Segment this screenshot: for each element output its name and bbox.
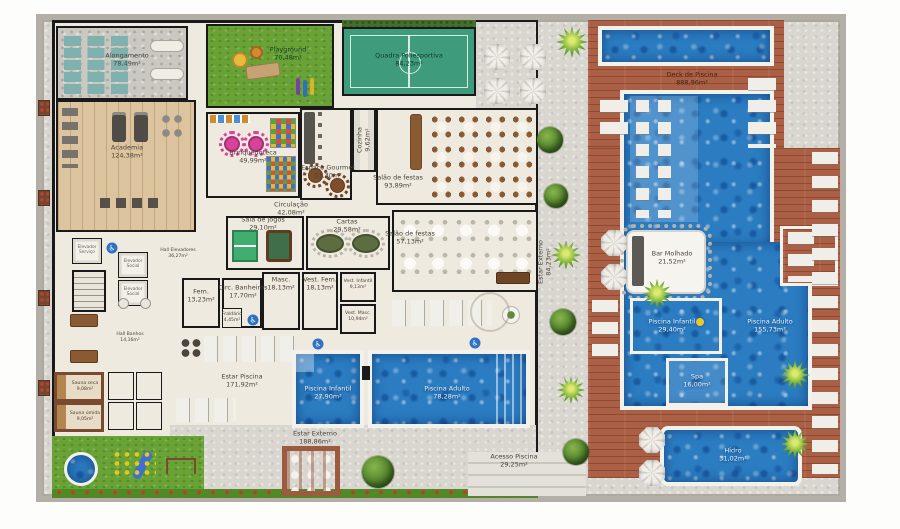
kids-table — [248, 136, 264, 152]
deck-loungers — [600, 100, 628, 142]
stretch-mats — [64, 36, 128, 94]
tree — [563, 439, 589, 465]
stairs — [72, 270, 106, 312]
hedge-strip — [342, 20, 476, 27]
pool-divider-gate — [362, 366, 370, 380]
elevator-social-2-label: Elevador Social — [119, 288, 147, 298]
shower-basin — [140, 298, 151, 309]
card-table — [316, 234, 344, 253]
room-vest-masc — [340, 304, 376, 334]
umbrella — [601, 230, 627, 256]
gym-weight-rack — [62, 108, 78, 168]
deck-island-loungers — [788, 232, 814, 282]
garden-swing-frame — [166, 458, 196, 474]
shower-basin — [118, 298, 129, 309]
room-fem — [182, 278, 220, 328]
deck-loungers-column — [812, 152, 838, 474]
pergola — [282, 446, 340, 496]
room-wc — [108, 372, 134, 400]
room-fraldario — [222, 308, 242, 328]
in-pool-loungers — [636, 100, 649, 218]
room-quadra — [342, 27, 476, 96]
play-rug — [270, 118, 296, 148]
sideboard — [496, 272, 530, 284]
planter-box — [38, 190, 50, 206]
pool-float-toy — [696, 318, 704, 326]
lounge-armchairs — [180, 338, 202, 358]
banquet-tables — [428, 112, 536, 202]
hidro-pool — [660, 426, 802, 486]
room-cozinha — [352, 108, 376, 172]
floor-plan-canvas: Elevador Serviço Elevador Social Elevado… — [0, 0, 900, 529]
garden-round-pool — [64, 452, 98, 486]
kids-table — [224, 136, 240, 152]
gourmet-bar-counter — [304, 112, 315, 164]
umbrella — [639, 427, 665, 453]
pool-steps — [296, 354, 314, 372]
umbrella — [601, 264, 627, 290]
room-vest-infantil — [340, 272, 376, 302]
toy-shelf — [210, 115, 250, 123]
tree — [544, 184, 568, 208]
gym-benches — [100, 198, 160, 208]
room-wc — [136, 372, 162, 400]
elevator-servico-label: Elevador Serviço — [73, 246, 101, 256]
card-table — [352, 234, 380, 253]
accessibility-icon: ♿ — [313, 339, 324, 350]
lap-pool — [598, 26, 774, 66]
planter-box — [38, 290, 50, 306]
snooker-table — [266, 230, 292, 262]
deck-loungers — [748, 78, 776, 148]
tree — [550, 309, 576, 335]
gym-treadmill — [134, 112, 148, 142]
pool-loungers-row — [204, 336, 296, 362]
elevator-social-1-label: Elevador Social — [119, 260, 147, 270]
gourmet-table — [308, 168, 323, 183]
room-sauna-seca — [54, 372, 104, 402]
room-vest-fem — [302, 272, 338, 330]
stretch-bench — [150, 40, 184, 52]
play-poles — [296, 78, 300, 95]
umbrella — [520, 44, 546, 70]
wet-bar-counter — [632, 236, 644, 286]
gourmet-table — [330, 178, 345, 193]
piscina-infantil-externa-box — [630, 298, 722, 354]
gym-treadmill — [112, 112, 126, 142]
accessibility-icon: ♿ — [107, 243, 118, 254]
elevator-servico: Elevador Serviço — [72, 238, 102, 264]
spa-box — [666, 358, 728, 406]
room-masc — [262, 272, 300, 330]
in-pool-loungers — [658, 100, 671, 218]
pool-lane-steps — [496, 354, 526, 424]
accessibility-icon: ♿ — [470, 338, 481, 349]
elevator-social-1: Elevador Social — [118, 252, 148, 278]
garden-flowerbed — [112, 450, 156, 478]
planter-box — [38, 100, 50, 116]
planter-box — [38, 380, 50, 396]
umbrella — [639, 460, 665, 486]
hall-sideboard — [70, 314, 98, 327]
tree — [537, 127, 563, 153]
tree — [362, 456, 394, 488]
room-sauna-umida — [54, 402, 104, 432]
gym-bikes — [160, 112, 184, 140]
room-wc — [108, 402, 134, 430]
accessibility-icon: ♿ — [248, 315, 259, 326]
toy-blocks — [266, 156, 296, 192]
umbrella — [520, 78, 546, 104]
watermark-logo — [470, 292, 510, 332]
play-tower — [250, 46, 263, 59]
bar-stools — [318, 112, 322, 164]
room-wc — [136, 402, 162, 430]
hall-sideboard — [70, 350, 98, 363]
ping-pong-table — [232, 230, 258, 262]
play-carousel — [232, 52, 248, 68]
deck-loungers — [592, 300, 618, 358]
pool-loungers-row — [176, 398, 236, 422]
buffet-counter — [410, 114, 422, 170]
stretch-bench — [150, 68, 184, 80]
